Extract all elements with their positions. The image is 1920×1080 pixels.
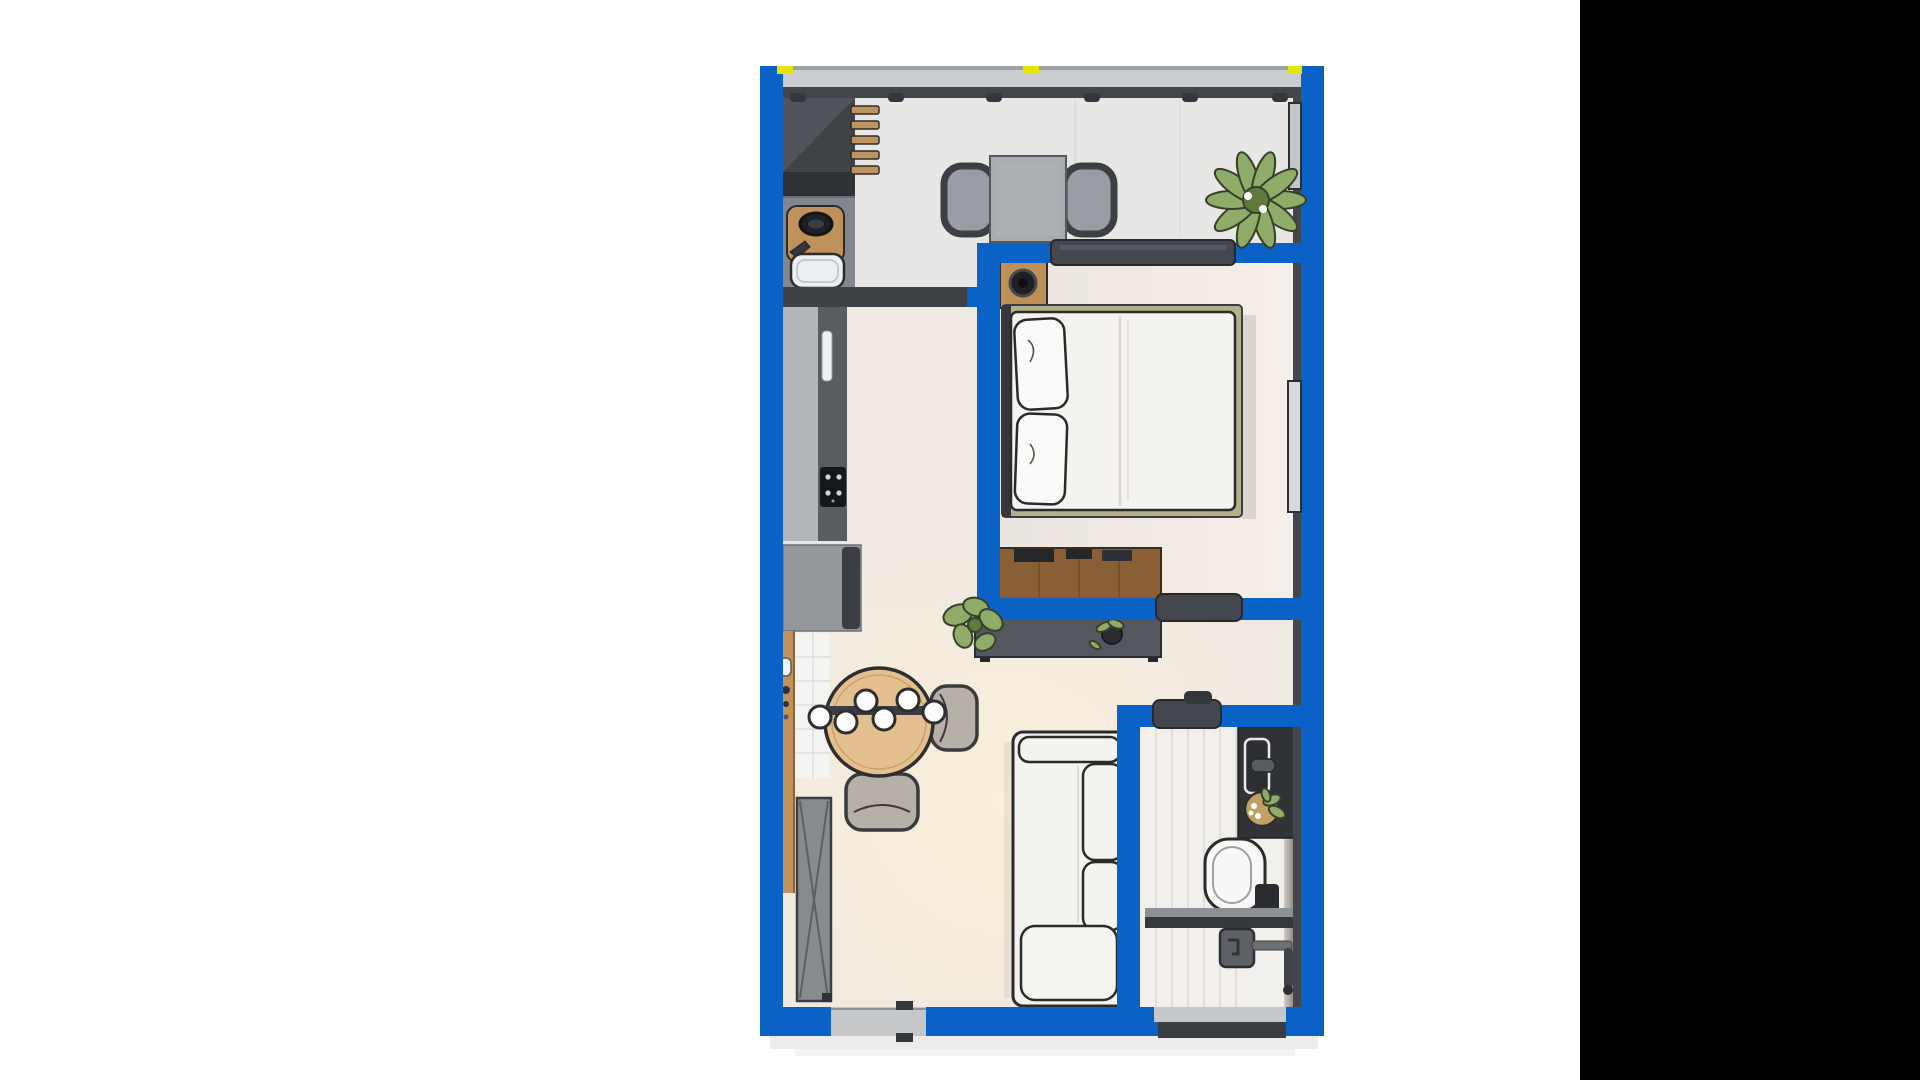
- bedroom-sliding-door: [1051, 240, 1235, 265]
- sofa-armrest-top: [1019, 737, 1120, 762]
- lamp-center: [1018, 278, 1028, 288]
- right-wall-inner-face: [1293, 98, 1301, 1007]
- right-black-panel: [1580, 0, 1920, 1080]
- table-top-sheen: [996, 162, 1060, 236]
- bedroom-bottom-wall-right: [1240, 598, 1301, 620]
- kitchen-divider-wall: [783, 287, 967, 307]
- screenshot-canvas: [0, 0, 1920, 1080]
- bedroom-bottom-wall: [977, 598, 1158, 620]
- dresser-item: [1066, 549, 1092, 559]
- counter-tray: [822, 331, 832, 381]
- shelf-item: [783, 701, 789, 707]
- sofa-end-cushion: [1021, 926, 1117, 1000]
- bathroom-left-wall: [1117, 705, 1140, 1007]
- plant-flower: [1244, 192, 1252, 200]
- pillow-top: [1014, 318, 1069, 410]
- door-hinge: [896, 1001, 913, 1010]
- headboard: [1002, 305, 1011, 517]
- door-hinge: [896, 1033, 913, 1042]
- top-band-edge: [783, 66, 1301, 70]
- sofa: [1004, 732, 1126, 1006]
- bed-shadow: [1242, 315, 1256, 519]
- plant-flower: [1259, 205, 1267, 213]
- kitchen-counter-run: [783, 307, 847, 541]
- wall-stub: [967, 287, 977, 307]
- door-inner-line: [1060, 245, 1226, 250]
- bathroom-door-leaf: [1153, 700, 1221, 728]
- bedroom-door-leaf: [1156, 594, 1242, 621]
- chair-left: [944, 166, 994, 234]
- bathroom-door-handle: [1184, 691, 1212, 704]
- sink-counter: [783, 196, 855, 290]
- bedroom-top-wall: [1000, 243, 1053, 263]
- shower-handle: [1284, 948, 1293, 988]
- dresser-item: [1102, 550, 1132, 561]
- door-hinge: [822, 993, 832, 1002]
- bedroom-window: [1288, 381, 1301, 512]
- bathroom-top-wall-right: [1218, 705, 1301, 727]
- fridge-handle: [842, 547, 860, 629]
- dresser: [997, 548, 1161, 599]
- floor-plan-image: [0, 0, 1920, 1080]
- shelf-item: [782, 686, 790, 694]
- shower-divider-top: [1145, 908, 1303, 917]
- top-dining-set: [944, 156, 1114, 242]
- shower-divider: [1145, 917, 1303, 928]
- pillow-bottom: [1014, 413, 1067, 505]
- toilet-tank: [1255, 884, 1279, 912]
- dining-chair-bottom: [846, 774, 918, 830]
- entry-door-leaf: [797, 798, 832, 1002]
- cabinet-dark-strip: [783, 172, 855, 196]
- bedroom-left-wall: [977, 243, 1000, 620]
- right-exterior-wall: [1301, 66, 1324, 1036]
- dresser-item: [1014, 549, 1054, 562]
- entry-opening: [831, 1001, 926, 1042]
- top-wall-frame: [783, 87, 1301, 98]
- left-exterior-wall: [760, 66, 783, 1036]
- chair-right: [1064, 166, 1114, 234]
- vanity-faucet: [1251, 759, 1275, 772]
- plan-drop-shadow-soft: [795, 1049, 1295, 1056]
- refrigerator: [783, 545, 861, 631]
- shelf-item: [784, 715, 789, 720]
- bathroom-bottom-window: [1154, 1007, 1286, 1038]
